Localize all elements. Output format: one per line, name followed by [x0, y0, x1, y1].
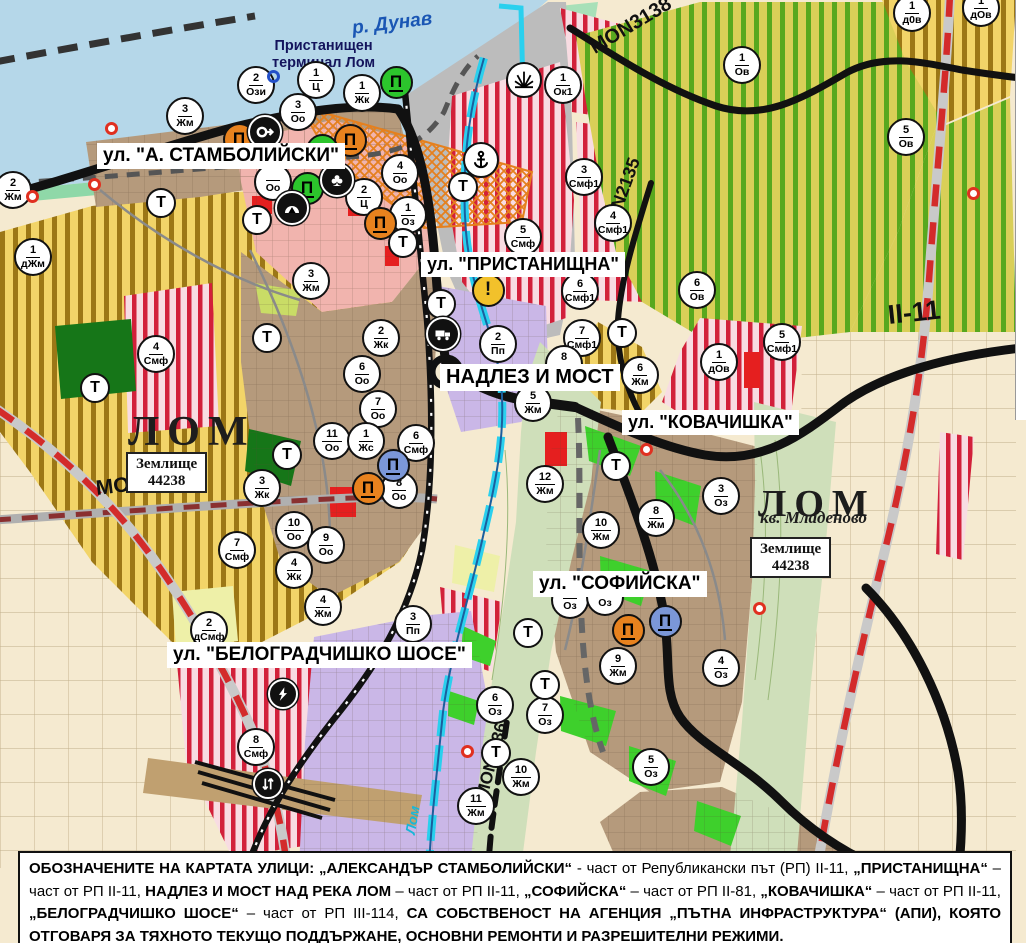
- zone-marker: 1Ов: [723, 46, 761, 84]
- zone-marker: 3Смф1: [565, 158, 603, 196]
- legend-text-bar: ОБОЗНАЧЕНИТЕ НА КАРТАТА УЛИЦИ: „АЛЕКСАНД…: [18, 851, 1012, 943]
- transport-zone-marker: Т: [146, 188, 176, 218]
- zone-marker: 11Жм: [457, 787, 495, 825]
- zone-marker: 2Пп: [479, 325, 517, 363]
- land-parcel-box: Землище44238: [750, 537, 831, 578]
- zone-marker: 4Смф: [137, 335, 175, 373]
- legend-text-segment: - част от Републикански път (РП) II-11,: [572, 860, 853, 877]
- red-dot-icon: [640, 443, 653, 456]
- zone-marker: 1Жс: [347, 422, 385, 460]
- zone-marker: 4Жк: [275, 551, 313, 589]
- red-dot-icon: [26, 190, 39, 203]
- zone-marker: 9Жм: [599, 647, 637, 685]
- zone-marker: 9Оо: [307, 526, 345, 564]
- zone-marker: 2Жк: [362, 319, 400, 357]
- legend-text-segment: „СОФИЙСКА“: [524, 883, 626, 900]
- monument-green-icon: Π: [380, 66, 413, 99]
- zone-marker: 6Жм: [621, 356, 659, 394]
- fan-icon: [506, 62, 542, 98]
- zone-marker: 4Жм: [304, 588, 342, 626]
- zone-marker: 1дЖм: [14, 238, 52, 276]
- zone-marker: 4Смф1: [594, 204, 632, 242]
- red-dot-icon: [105, 122, 118, 135]
- transport-zone-marker: Т: [242, 205, 272, 235]
- transport-zone-marker: Т: [272, 440, 302, 470]
- monument-blue-icon: Π: [649, 605, 682, 638]
- transport-zone-marker: Т: [513, 618, 543, 648]
- legend-text-segment: – част от РП II-11,: [872, 883, 1001, 900]
- zone-marker: 7Смф: [218, 531, 256, 569]
- zone-marker: 3Оз: [702, 477, 740, 515]
- warning-icon: !: [472, 274, 505, 307]
- legend-text-segment: „БЕЛОГРАДЧИШКО ШОСЕ“: [29, 905, 239, 922]
- legend-text-segment: НАДЛЕЗ И МОСТ НАД РЕКА ЛОМ: [145, 883, 391, 900]
- zone-marker: 6Смф1: [561, 272, 599, 310]
- street-name-label: НАДЛЕЗ И МОСТ: [440, 364, 620, 391]
- zone-marker: 5Смф: [504, 218, 542, 256]
- zone-marker: 3Оо: [279, 93, 317, 131]
- truck-icon: [426, 317, 460, 351]
- street-name-label: ул. "БЕЛОГРАДЧИШКО ШОСЕ": [167, 642, 472, 668]
- zone-marker: 8Жм: [637, 499, 675, 537]
- street-name-label: ул. "А. СТАМБОЛИЙСКИ": [97, 143, 345, 169]
- zone-marker: 4Оз: [702, 649, 740, 687]
- legend-text-segment: – част от РП III-114,: [239, 905, 407, 922]
- zone-marker: 3Жм: [166, 97, 204, 135]
- transport-zone-marker: Т: [426, 289, 456, 319]
- transport-zone-marker: Т: [601, 451, 631, 481]
- city-name-label: ЛОМ: [128, 408, 256, 456]
- legend-text-segment: – част от РП II-11,: [391, 883, 524, 900]
- blue-ring-icon: [267, 70, 280, 83]
- red-dot-icon: [753, 602, 766, 615]
- transport-zone-marker: Т: [252, 323, 282, 353]
- red-dot-icon: [967, 187, 980, 200]
- lightning-icon: [268, 679, 298, 709]
- zone-marker: 6Ов: [678, 271, 716, 309]
- monument-blue-icon: Π: [377, 449, 410, 482]
- street-name-label: ул. "СОФИЙСКА": [533, 571, 707, 597]
- zone-marker: 3Пп: [394, 605, 432, 643]
- zone-marker: 5Смф1: [763, 323, 801, 361]
- legend-text-segment: „ПРИСТАНИЩНА“: [853, 860, 988, 877]
- anchor-icon: [463, 142, 499, 178]
- red-dot-icon: [461, 745, 474, 758]
- zone-marker: 1дОв: [700, 343, 738, 381]
- zone-marker: 3Жк: [243, 469, 281, 507]
- zone-marker: 6Оз: [476, 686, 514, 724]
- zone-marker: 8Смф: [237, 728, 275, 766]
- zone-marker: 10Жм: [582, 511, 620, 549]
- map-sheet-edge: [1015, 0, 1026, 420]
- transport-zone-marker: Т: [607, 318, 637, 348]
- legend-text-segment: ОБОЗНАЧЕНИТЕ НА КАРТАТА УЛИЦИ: „АЛЕКСАНД…: [29, 860, 572, 877]
- zone-marker: 10Жм: [502, 758, 540, 796]
- arrows-icon: [253, 769, 283, 799]
- transport-zone-marker: Т: [481, 738, 511, 768]
- monument-orange-icon: Π: [612, 614, 645, 647]
- zone-marker: 12Жм: [526, 465, 564, 503]
- legend-text-segment: „КОВАЧИШКА“: [760, 883, 872, 900]
- zone-marker: 1Жк: [343, 74, 381, 112]
- zone-marker: 6Оо: [343, 355, 381, 393]
- zone-marker: 5Ов: [887, 118, 925, 156]
- zone-marker: 7Оз: [526, 696, 564, 734]
- zone-marker: 4Оо: [381, 154, 419, 192]
- monument-orange-icon: Π: [364, 207, 397, 240]
- map-canvas[interactable]: р. Дунав Пристанищен терминал Лом Лом ЛО…: [0, 0, 1026, 943]
- red-dot-icon: [88, 178, 101, 191]
- tunnel-icon: [275, 191, 309, 225]
- monument-orange-icon: Π: [352, 472, 385, 505]
- street-name-label: ул. "ПРИСТАНИЩНА": [421, 252, 625, 277]
- zone-marker: 11Оо: [313, 422, 351, 460]
- road-number-label: II-11: [886, 295, 941, 331]
- zone-marker: 3Жм: [292, 262, 330, 300]
- zone-marker: 5Оз: [632, 748, 670, 786]
- quarter-name-label: кв. Младеново: [760, 508, 867, 528]
- land-parcel-box: Землище44238: [126, 452, 207, 493]
- street-name-label: ул. "КОВАЧИШКА": [622, 410, 799, 435]
- transport-zone-marker: Т: [530, 670, 560, 700]
- transport-zone-marker: Т: [80, 373, 110, 403]
- legend-text-segment: – част от РП II-81,: [626, 883, 760, 900]
- zone-marker: 1Ок1: [544, 66, 582, 104]
